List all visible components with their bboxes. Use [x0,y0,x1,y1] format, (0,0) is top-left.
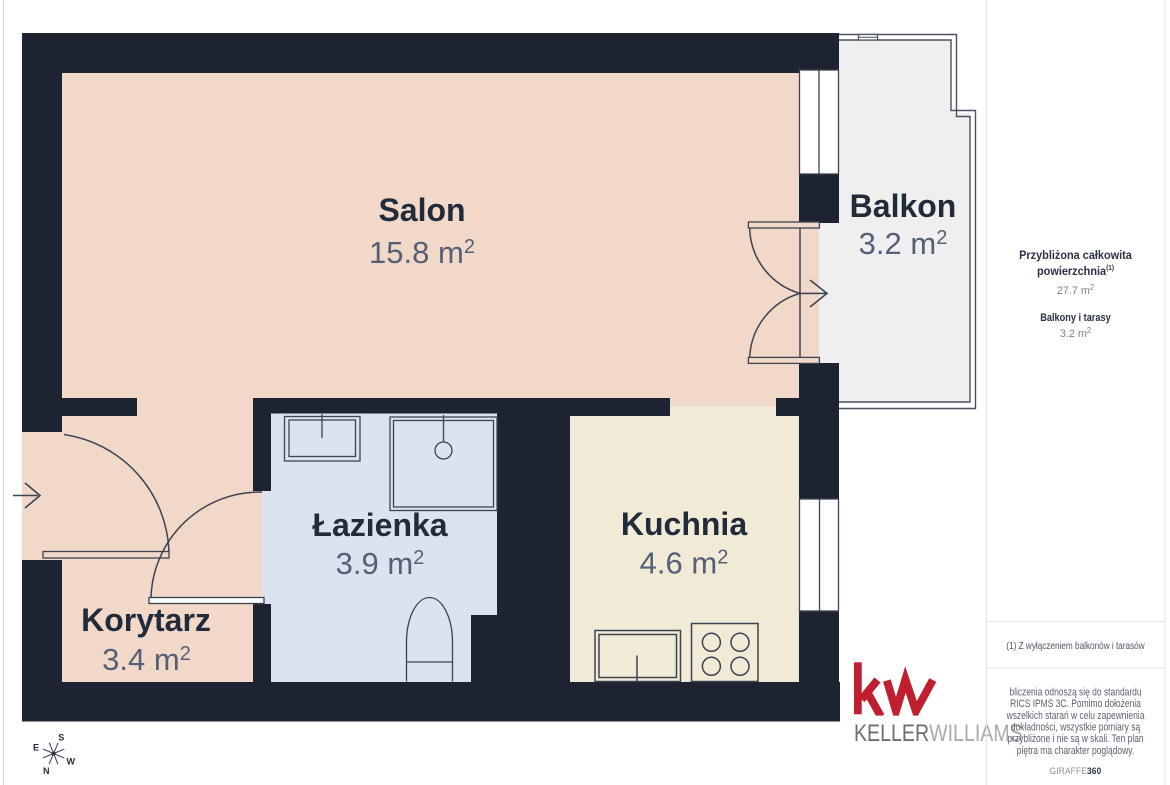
svg-text:S: S [58,732,64,742]
svg-text:Balkony i tarasy: Balkony i tarasy [1040,312,1111,324]
svg-text:Korytarz: Korytarz [81,602,211,638]
svg-text:piętra ma charakter poglądowy.: piętra ma charakter poglądowy. [1017,745,1134,757]
svg-text:przybliżone i nie są w skali.: przybliżone i nie są w skali. Ten plan [1007,733,1143,745]
svg-text:KELLERWILLIAMS: KELLERWILLIAMS [854,719,1023,747]
svg-text:3.2 m2: 3.2 m2 [1060,326,1091,340]
svg-text:N: N [43,766,50,776]
svg-text:Balkon: Balkon [850,188,957,224]
svg-text:15.8 m2: 15.8 m2 [369,235,475,270]
svg-text:27.7 m2: 27.7 m2 [1057,283,1094,297]
svg-text:Łazienka: Łazienka [312,507,447,543]
svg-text:W: W [67,756,76,766]
svg-text:E: E [33,743,39,753]
svg-text:bliczenia odnoszą się do stand: bliczenia odnoszą się do standardu [1009,687,1141,699]
svg-text:Salon: Salon [378,192,465,228]
svg-text:Przybliżona całkowita: Przybliżona całkowita [1019,250,1132,262]
svg-text:wszelkich starań w celu zapewn: wszelkich starań w celu zapewnienia [1006,710,1145,722]
svg-text:GIRAFFE360: GIRAFFE360 [1050,765,1102,776]
svg-text:dokładności, wszystkie pomiary: dokładności, wszystkie pomiary są [1011,722,1141,734]
svg-text:powierzchnia(1): powierzchnia(1) [1037,265,1114,278]
svg-text:4.6 m2: 4.6 m2 [640,546,729,581]
svg-text:Kuchnia: Kuchnia [621,506,747,542]
svg-text:3.4 m2: 3.4 m2 [102,642,191,677]
svg-text:RICS IPMS 3C. Pomimo dołożenia: RICS IPMS 3C. Pomimo dołożenia [1010,698,1141,710]
svg-text:3.9 m2: 3.9 m2 [336,546,425,581]
svg-text:3.2 m2: 3.2 m2 [859,226,948,261]
svg-text:(1) Z wyłączeniem balkonów i t: (1) Z wyłączeniem balkonów i tarasów [1006,640,1145,651]
